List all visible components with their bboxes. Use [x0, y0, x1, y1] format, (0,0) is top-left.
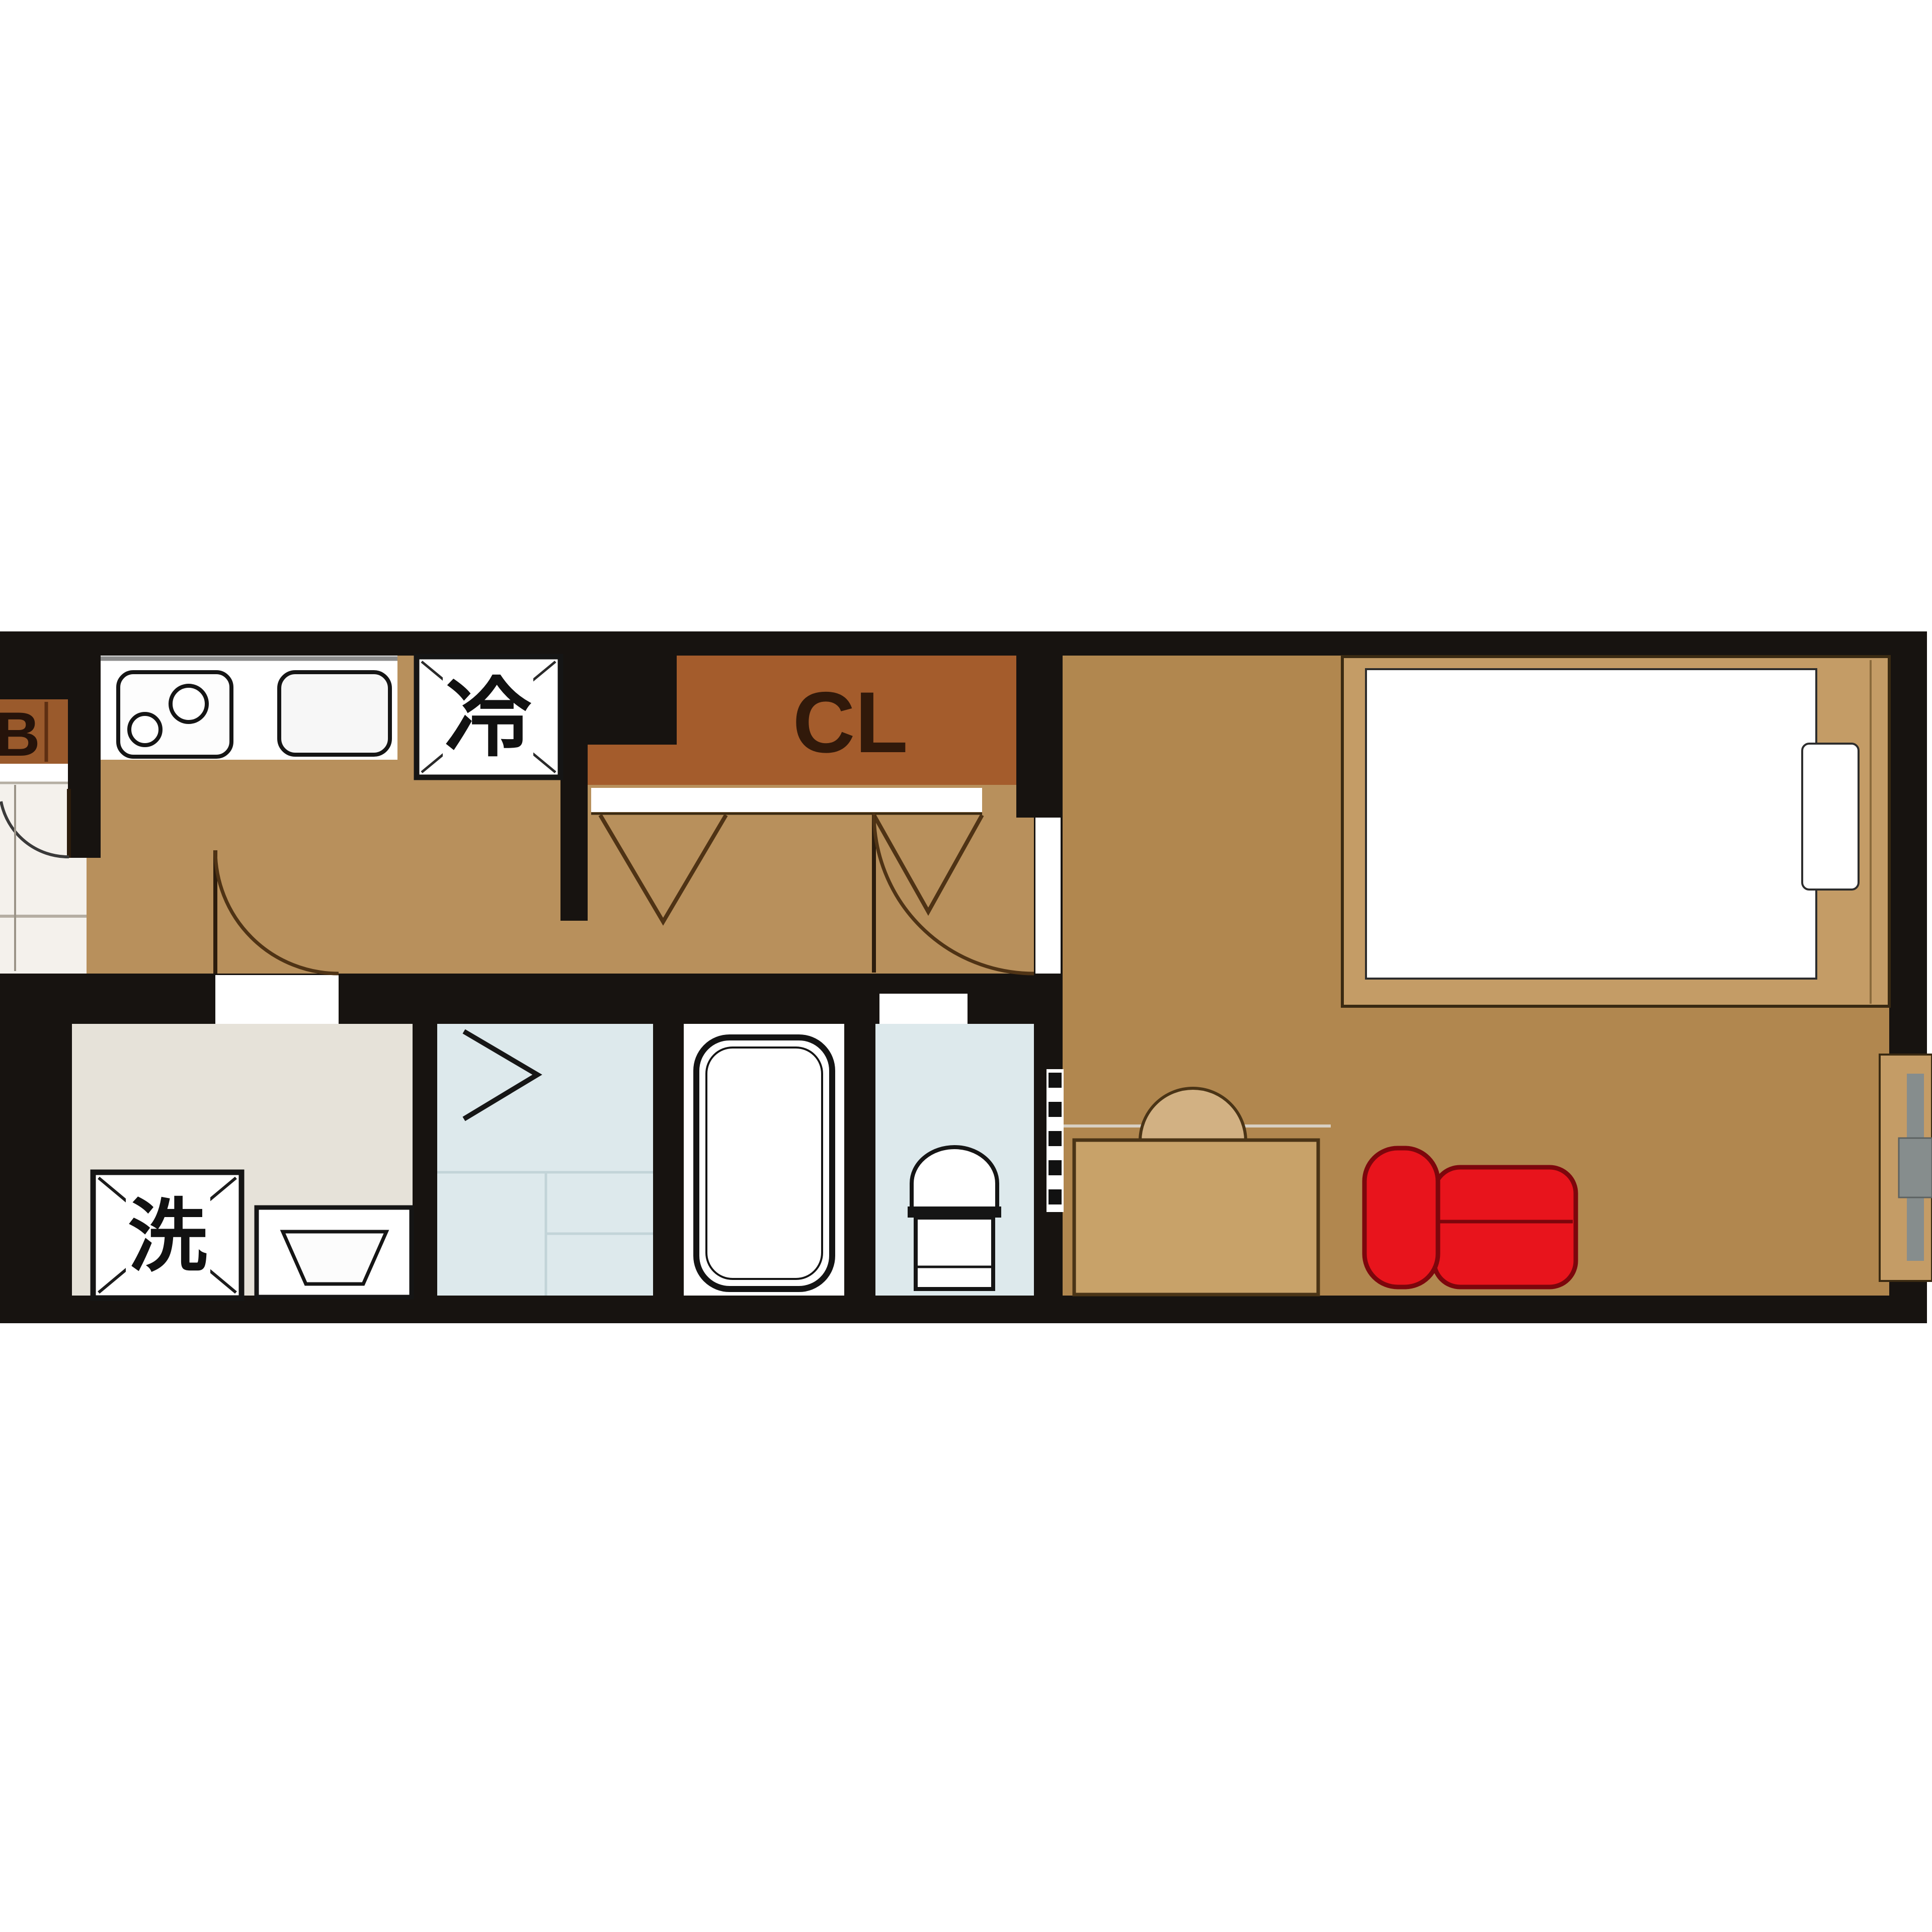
stove-burner-large [171, 686, 207, 722]
closet-shelf-strip [591, 788, 982, 812]
bathtub [696, 1037, 832, 1289]
balcony-label: B [0, 700, 40, 769]
refrigerator-label: 冷 [445, 670, 532, 767]
toilet-door-opening [879, 994, 968, 1024]
hallway-floor-strip [87, 858, 103, 974]
toilet-bowl [912, 1147, 997, 1213]
main-room-door-opening [1035, 818, 1061, 974]
closet-label: CL [792, 674, 908, 771]
closet-wall-notch [588, 656, 677, 745]
floor-plan: CL 冷 B 洗 [0, 0, 1932, 1932]
pillow [1802, 744, 1859, 890]
stove-burner-small [129, 714, 160, 745]
desk [1074, 1140, 1318, 1295]
kitchen-sink [279, 672, 390, 755]
toilet-tank [916, 1218, 993, 1289]
mattress [1366, 669, 1816, 979]
washer-label: 洗 [128, 1192, 207, 1281]
wall-kitchen-column [560, 656, 588, 921]
window-handle [1899, 1138, 1932, 1197]
wall-closet-right [1016, 656, 1035, 818]
sofa-backrest [1364, 1148, 1438, 1287]
sofa-body [1434, 1167, 1576, 1287]
wall-entrance-column [68, 656, 101, 858]
washroom-door-opening [215, 975, 339, 1024]
